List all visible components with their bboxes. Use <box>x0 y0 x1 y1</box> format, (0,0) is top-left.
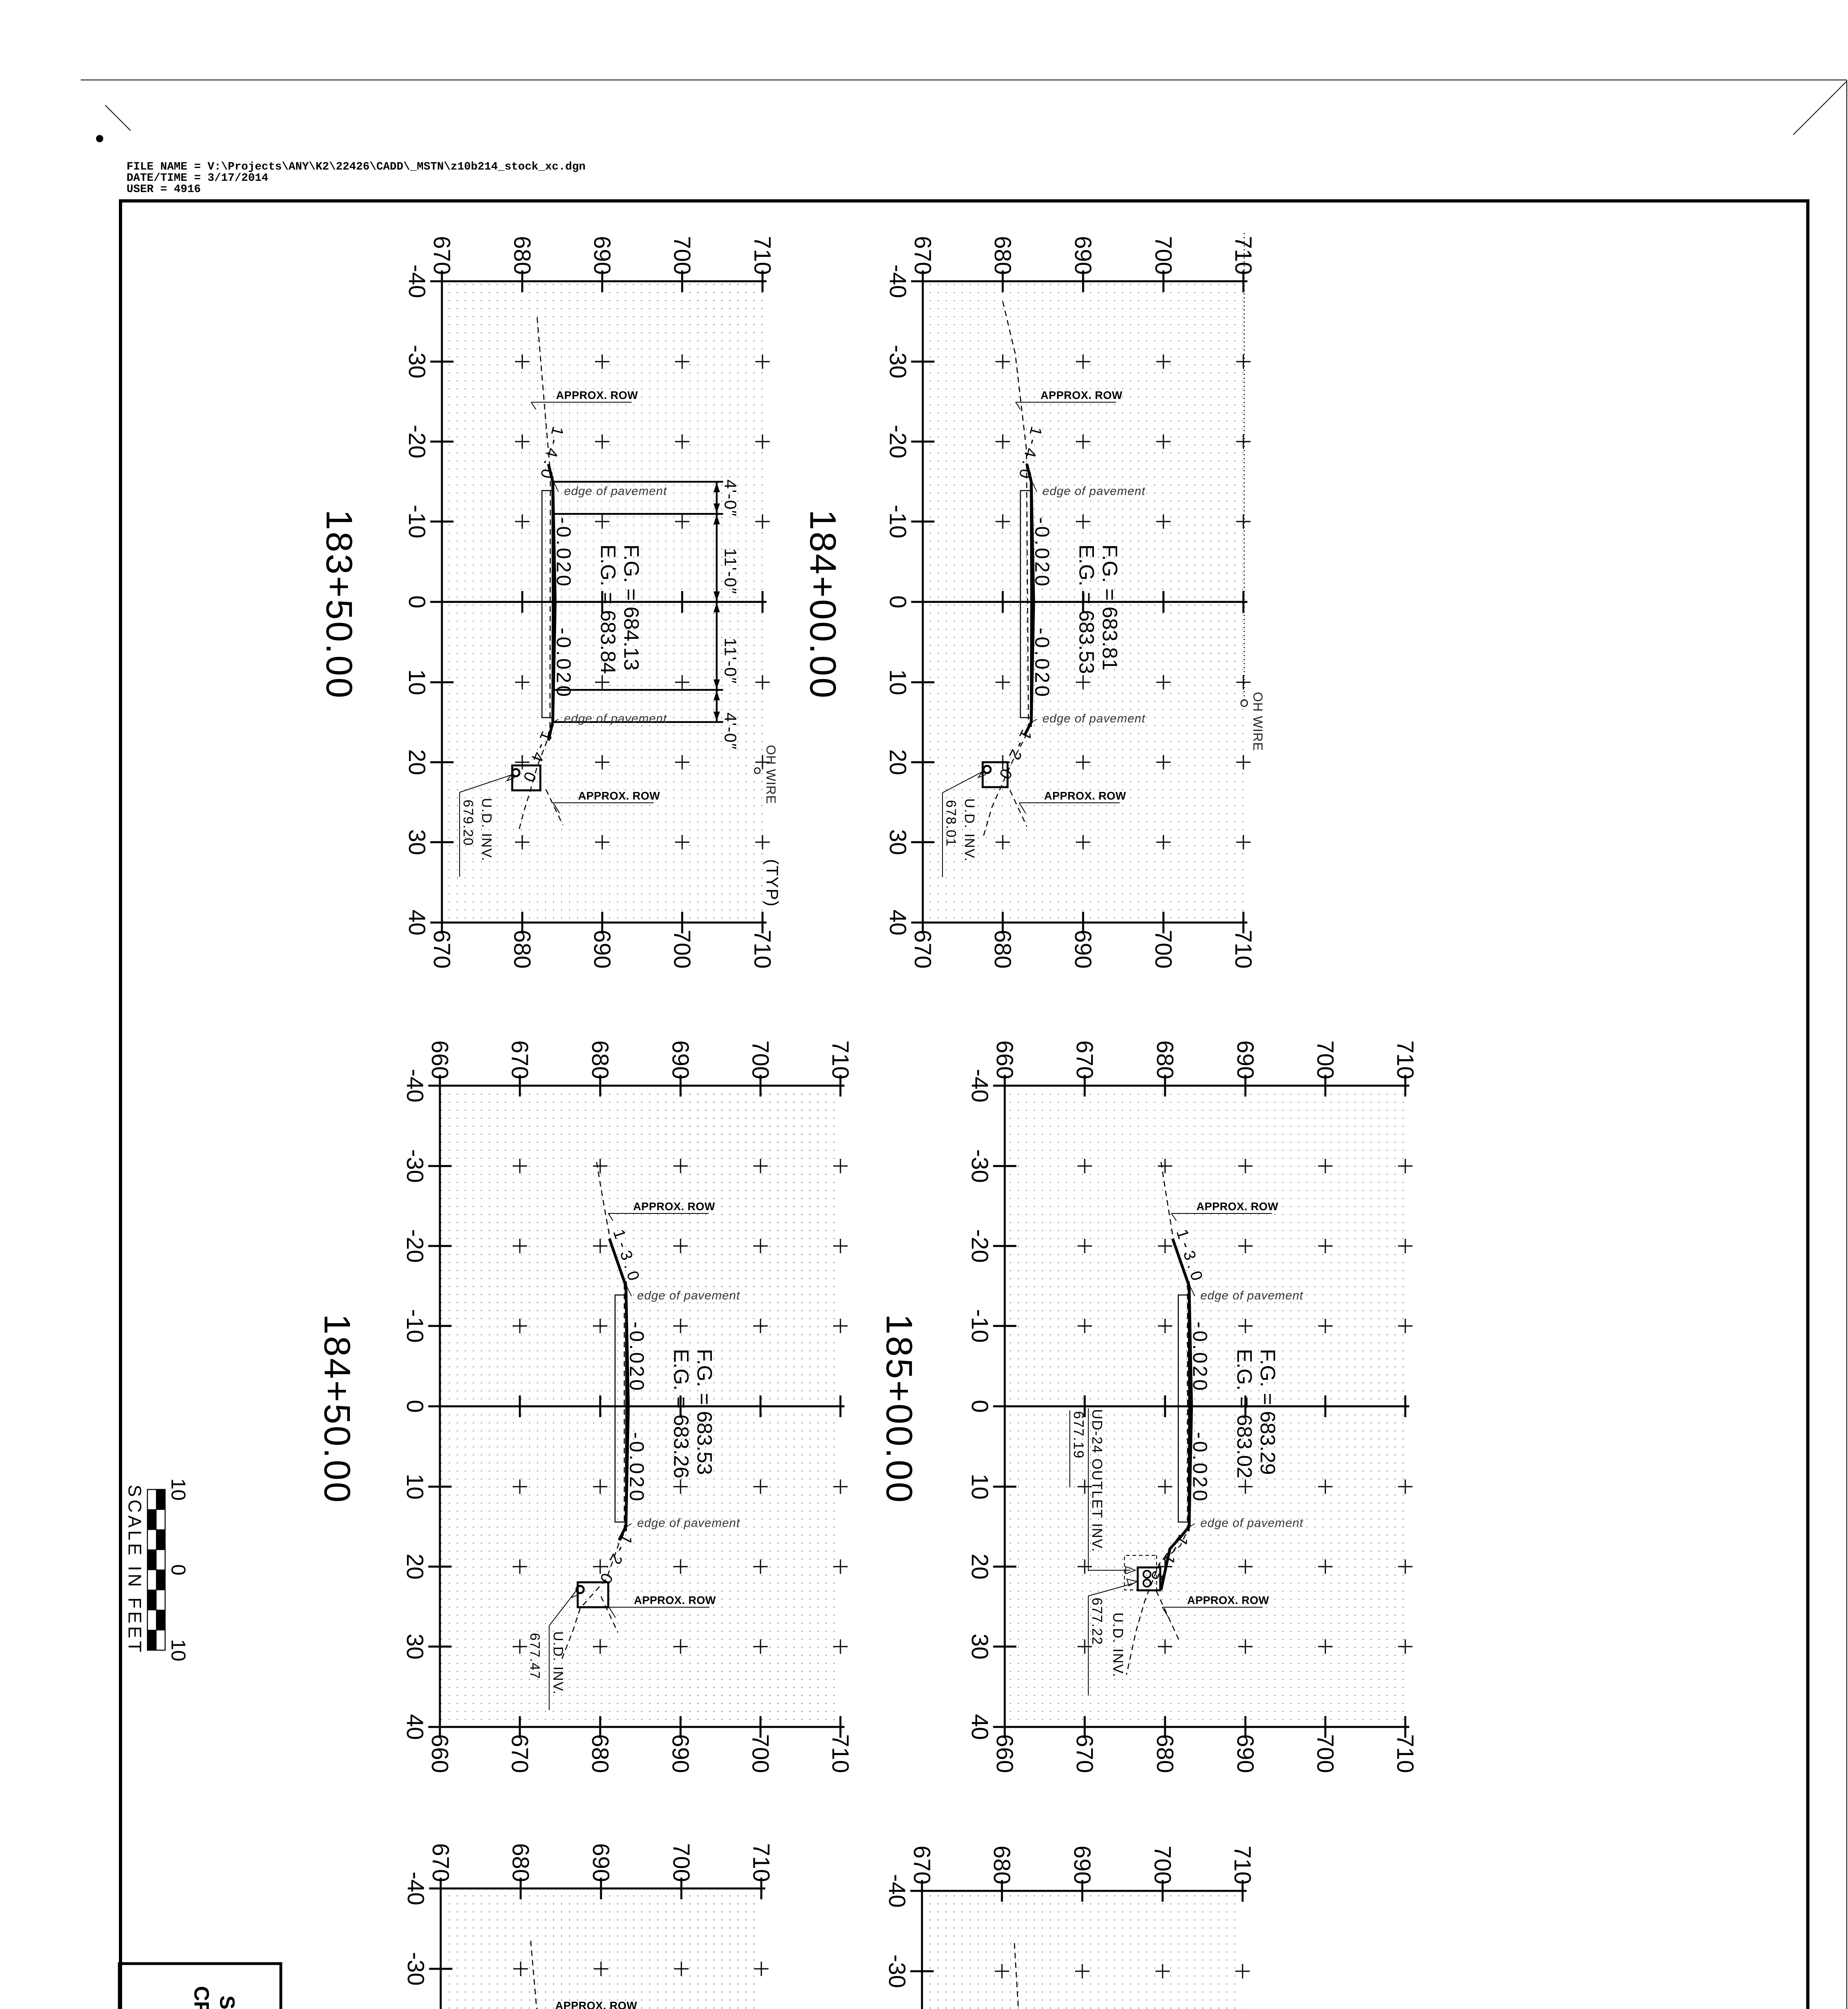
svg-text:E.G. = 683.26: E.G. = 683.26 <box>669 1349 693 1478</box>
svg-text:10: 10 <box>167 1639 190 1661</box>
svg-text:-0.020: -0.020 <box>1189 1432 1211 1504</box>
svg-text:679.20: 679.20 <box>460 800 476 846</box>
svg-text:U.D. INV.: U.D. INV. <box>550 1631 566 1695</box>
svg-text:APPROX. ROW: APPROX. ROW <box>1196 1200 1278 1213</box>
svg-text:11'-0″: 11'-0″ <box>721 638 740 684</box>
svg-text:30: 30 <box>402 1634 428 1660</box>
svg-text:690: 690 <box>1232 1734 1258 1773</box>
svg-text:710: 710 <box>1230 930 1256 969</box>
svg-text:-30: -30 <box>404 345 430 378</box>
svg-text:690: 690 <box>588 1843 614 1882</box>
svg-text:700: 700 <box>747 1734 773 1773</box>
svg-text:-30: -30 <box>967 1149 993 1183</box>
svg-text:-30: -30 <box>884 1954 910 1988</box>
svg-text:APPROX. ROW: APPROX. ROW <box>634 1594 716 1606</box>
svg-text:680: 680 <box>587 1734 613 1773</box>
svg-text:0: 0 <box>885 595 911 608</box>
svg-text:FILE NAME = V:\Projects\ANY\K2: FILE NAME = V:\Projects\ANY\K2\22426\CAD… <box>127 161 586 173</box>
svg-text:700: 700 <box>668 1843 694 1882</box>
svg-text:edge of pavement: edge of pavement <box>1200 1289 1304 1302</box>
svg-text:40: 40 <box>402 1714 428 1740</box>
svg-text:690: 690 <box>1069 1845 1095 1884</box>
svg-text:APPROX. ROW: APPROX. ROW <box>578 790 660 802</box>
svg-text:F.G. = 683.29: F.G. = 683.29 <box>1256 1349 1279 1475</box>
svg-text:690: 690 <box>667 1040 693 1079</box>
svg-text:STOCKBRIDGE: STOCKBRIDGE <box>215 1995 239 2009</box>
svg-text:-40: -40 <box>884 1874 910 1908</box>
svg-text:-20: -20 <box>885 425 911 458</box>
svg-text:-40: -40 <box>885 264 911 298</box>
svg-text:670: 670 <box>909 1845 935 1884</box>
svg-text:-20: -20 <box>402 1229 428 1263</box>
svg-text:-0.020: -0.020 <box>1031 628 1053 699</box>
svg-text:40: 40 <box>967 1714 993 1740</box>
svg-text:710: 710 <box>1229 1845 1255 1884</box>
svg-text:-0.020: -0.020 <box>1189 1322 1211 1393</box>
svg-text:-0.020: -0.020 <box>626 1322 648 1393</box>
svg-text:670: 670 <box>910 236 936 275</box>
svg-text:710: 710 <box>1392 1734 1418 1773</box>
svg-text:700: 700 <box>1149 1845 1175 1884</box>
svg-text:edge of pavement: edge of pavement <box>1200 1516 1304 1530</box>
svg-text:690: 690 <box>1070 930 1096 969</box>
svg-text:700: 700 <box>1312 1734 1338 1773</box>
svg-text:670: 670 <box>1071 1040 1098 1079</box>
svg-text:APPROX. ROW: APPROX. ROW <box>555 1999 637 2009</box>
svg-text:U.D. INV.: U.D. INV. <box>1110 1612 1126 1678</box>
svg-text:680: 680 <box>507 1843 534 1882</box>
svg-text:670: 670 <box>427 1843 454 1882</box>
svg-text:680: 680 <box>509 930 535 969</box>
svg-text:(TYP): (TYP) <box>763 859 782 907</box>
svg-text:184+00.00: 184+00.00 <box>802 509 843 700</box>
svg-text:700: 700 <box>1312 1040 1338 1079</box>
svg-text:20: 20 <box>967 1554 993 1580</box>
svg-text:700: 700 <box>1150 930 1176 969</box>
svg-text:4'-0″: 4'-0″ <box>721 479 740 517</box>
svg-text:10: 10 <box>167 1478 190 1501</box>
svg-text:F.G. = 684.13: F.G. = 684.13 <box>619 544 643 671</box>
svg-text:E.G. = 683.02: E.G. = 683.02 <box>1233 1349 1256 1478</box>
svg-text:680: 680 <box>1152 1040 1178 1079</box>
svg-text:690: 690 <box>589 930 615 969</box>
svg-text:677.19: 677.19 <box>1071 1411 1086 1459</box>
svg-text:710: 710 <box>1230 236 1256 275</box>
svg-text:660: 660 <box>427 1734 453 1773</box>
svg-text:40: 40 <box>885 910 911 936</box>
svg-text:edge of pavement: edge of pavement <box>637 1516 740 1530</box>
svg-text:-40: -40 <box>404 264 430 298</box>
svg-text:APPROX. ROW: APPROX. ROW <box>1044 790 1126 802</box>
svg-text:edge of pavement: edge of pavement <box>1043 712 1146 725</box>
svg-text:edge of pavement: edge of pavement <box>637 1289 740 1302</box>
svg-text:680: 680 <box>989 236 1016 275</box>
svg-text:710: 710 <box>827 1040 853 1079</box>
svg-text:670: 670 <box>507 1040 533 1079</box>
svg-text:-30: -30 <box>885 345 911 378</box>
svg-text:0: 0 <box>404 595 430 608</box>
svg-text:710: 710 <box>827 1734 853 1773</box>
svg-text:30: 30 <box>967 1634 993 1660</box>
svg-text:-40: -40 <box>967 1069 993 1103</box>
svg-text:-20: -20 <box>404 425 430 458</box>
svg-text:-40: -40 <box>403 1872 429 1905</box>
svg-text:20: 20 <box>402 1554 428 1580</box>
svg-text:10: 10 <box>404 669 430 696</box>
svg-text:670: 670 <box>1071 1734 1098 1773</box>
svg-text:184+50.00: 184+50.00 <box>317 1314 358 1504</box>
svg-text:edge of pavement: edge of pavement <box>564 712 667 725</box>
svg-text:11'-0″: 11'-0″ <box>721 548 740 595</box>
svg-text:30: 30 <box>885 829 911 855</box>
svg-text:edge of pavement: edge of pavement <box>1043 485 1146 498</box>
svg-text:710: 710 <box>749 930 775 969</box>
svg-text:E.G. = 683.53: E.G. = 683.53 <box>1075 544 1098 674</box>
svg-text:-10: -10 <box>967 1309 993 1343</box>
svg-text:DATE/TIME = 3/17/2014: DATE/TIME = 3/17/2014 <box>127 172 268 184</box>
svg-text:-0.020: -0.020 <box>1031 517 1053 589</box>
svg-text:677.22: 677.22 <box>1089 1598 1105 1645</box>
svg-text:-10: -10 <box>404 505 430 538</box>
svg-text:F.G. = 683.81: F.G. = 683.81 <box>1098 544 1121 671</box>
svg-text:CROSS SECTION: CROSS SECTION <box>190 1986 213 2009</box>
svg-text:OH WIRE: OH WIRE <box>1251 692 1265 751</box>
svg-text:APPROX. ROW: APPROX. ROW <box>1187 1594 1269 1606</box>
svg-text:APPROX. ROW: APPROX. ROW <box>633 1200 715 1213</box>
svg-text:4'-0″: 4'-0″ <box>721 712 740 750</box>
svg-text:OH WIRE: OH WIRE <box>764 745 778 804</box>
svg-text:710: 710 <box>749 236 775 275</box>
svg-text:20: 20 <box>404 749 430 775</box>
svg-text:-30: -30 <box>402 1149 428 1183</box>
svg-text:F.G. = 683.53: F.G. = 683.53 <box>693 1349 716 1475</box>
svg-text:U.D. INV.: U.D. INV. <box>479 798 494 861</box>
svg-text:-40: -40 <box>402 1069 428 1103</box>
svg-text:690: 690 <box>1070 236 1096 275</box>
svg-text:710: 710 <box>1392 1040 1418 1079</box>
svg-text:0: 0 <box>967 1400 993 1413</box>
svg-text:700: 700 <box>747 1040 773 1079</box>
svg-text:690: 690 <box>589 236 615 275</box>
svg-text:-10: -10 <box>885 505 911 538</box>
svg-text:10: 10 <box>885 669 911 696</box>
svg-text:670: 670 <box>429 930 455 969</box>
svg-text:700: 700 <box>669 930 695 969</box>
svg-text:670: 670 <box>507 1734 533 1773</box>
svg-text:20: 20 <box>885 749 911 775</box>
svg-text:-20: -20 <box>967 1229 993 1263</box>
svg-text:710: 710 <box>748 1843 774 1882</box>
svg-text:USER = 4916: USER = 4916 <box>127 183 201 196</box>
svg-text:690: 690 <box>667 1734 693 1773</box>
svg-text:183+50.00: 183+50.00 <box>319 509 360 700</box>
svg-text:670: 670 <box>910 930 936 969</box>
svg-text:700: 700 <box>1150 236 1176 275</box>
svg-text:-0.020: -0.020 <box>626 1432 648 1504</box>
svg-text:680: 680 <box>1152 1734 1178 1773</box>
svg-text:677.47: 677.47 <box>527 1633 542 1680</box>
svg-text:680: 680 <box>989 930 1016 969</box>
svg-text:700: 700 <box>669 236 695 275</box>
svg-text:660: 660 <box>991 1040 1018 1079</box>
svg-text:40: 40 <box>404 910 430 936</box>
svg-text:30: 30 <box>404 829 430 855</box>
svg-text:E.G. = 683.84: E.G. = 683.84 <box>596 544 619 674</box>
svg-text:680: 680 <box>587 1040 613 1079</box>
svg-text:680: 680 <box>509 236 535 275</box>
svg-text:185+00.00: 185+00.00 <box>879 1314 920 1504</box>
svg-text:APPROX. ROW: APPROX. ROW <box>1041 389 1122 401</box>
svg-text:APPROX. ROW: APPROX. ROW <box>556 389 638 401</box>
svg-text:U.D. INV.: U.D. INV. <box>962 798 977 862</box>
svg-text:10: 10 <box>967 1474 993 1500</box>
svg-text:-10: -10 <box>402 1309 428 1343</box>
svg-text:660: 660 <box>991 1734 1018 1773</box>
svg-text:0: 0 <box>167 1564 190 1575</box>
svg-text:0: 0 <box>402 1400 428 1413</box>
svg-text:10: 10 <box>402 1474 428 1500</box>
svg-text:660: 660 <box>427 1040 453 1079</box>
svg-text:680: 680 <box>989 1845 1015 1884</box>
svg-text:UD-24 OUTLET INV.: UD-24 OUTLET INV. <box>1089 1409 1105 1553</box>
svg-text:edge of pavement: edge of pavement <box>564 485 667 498</box>
svg-text:678.01: 678.01 <box>943 800 959 847</box>
svg-text:670: 670 <box>429 236 455 275</box>
svg-text:690: 690 <box>1232 1040 1258 1079</box>
svg-text:-30: -30 <box>403 1952 429 1986</box>
svg-text:-0.020: -0.020 <box>552 628 575 699</box>
svg-text:SCALE IN FEET: SCALE IN FEET <box>125 1485 145 1655</box>
svg-text:-0.020: -0.020 <box>552 517 575 589</box>
